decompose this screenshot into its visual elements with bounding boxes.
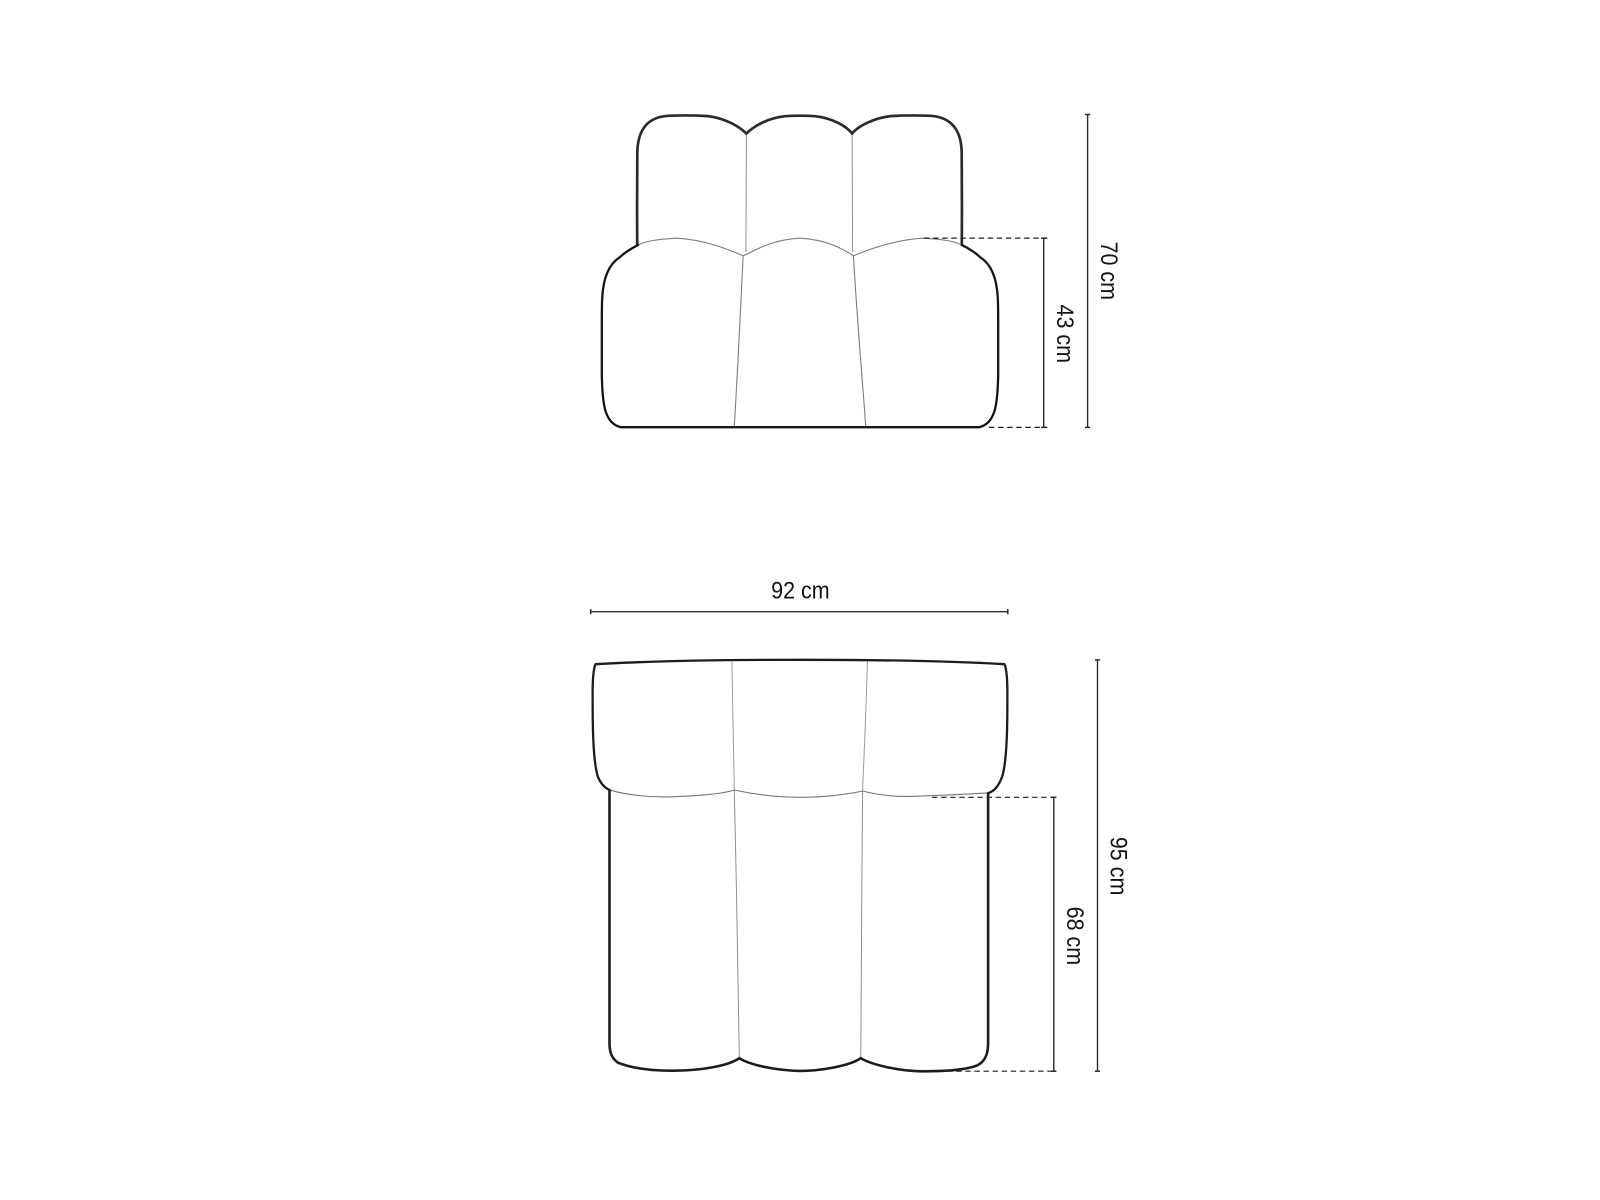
svg-text:43 cm: 43 cm	[1052, 305, 1080, 364]
svg-text:70 cm: 70 cm	[1096, 242, 1124, 301]
svg-text:95 cm: 95 cm	[1105, 837, 1133, 896]
svg-text:68 cm: 68 cm	[1062, 907, 1090, 966]
svg-text:92 cm: 92 cm	[771, 576, 830, 604]
